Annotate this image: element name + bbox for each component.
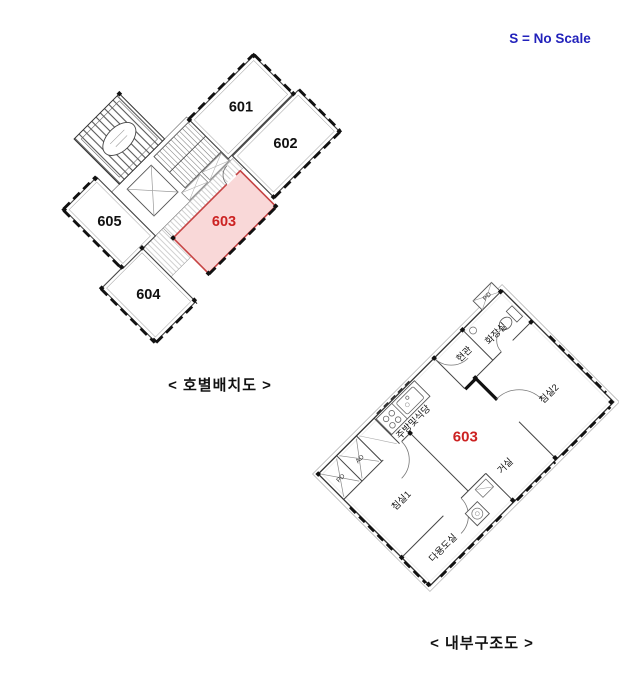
unit-603-label: 603 <box>212 214 236 230</box>
unit-602-label: 602 <box>273 136 297 152</box>
plan-drawing: 601 602 603 604 605 <box>0 0 619 700</box>
unit-601-label: 601 <box>229 100 253 116</box>
interior-plan-caption: < 내부구조도 > <box>382 632 582 653</box>
unit-layout-caption: < 호별배치도 > <box>120 374 320 395</box>
unit-605-label: 605 <box>97 214 121 230</box>
unit-604-label: 604 <box>136 287 160 303</box>
scale-note: S = No Scale <box>500 31 600 46</box>
floor-plan-sheet: 601 602 603 604 605 <box>0 0 619 700</box>
interior-unit-number: 603 <box>453 428 478 445</box>
unit-layout-plan: 601 602 603 604 605 <box>10 0 354 344</box>
interior-plan: 현관 화장실 침실2 거실 주방및식당 침실1 다용도실 PD AD PD 60… <box>306 278 619 591</box>
